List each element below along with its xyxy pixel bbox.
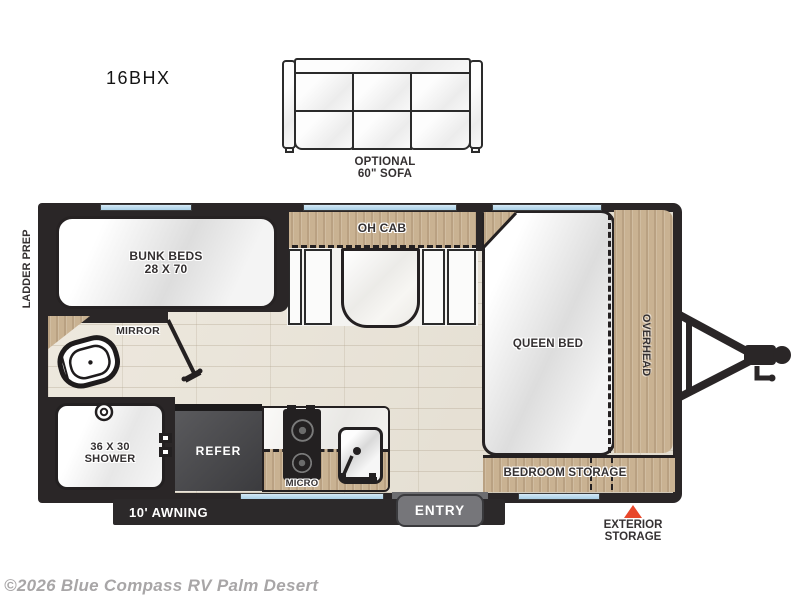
hitch [676, 313, 791, 399]
sink-faucet [339, 447, 377, 480]
wedge-edge [484, 213, 516, 247]
floorplan-page: 16BHX OPTIONAL 60" SOFA LADDER PREP OH C… [0, 0, 800, 600]
copyright: ©2026 Blue Compass RV Palm Desert [4, 576, 318, 596]
linework-overlay [0, 0, 800, 600]
shower-head-icon [96, 404, 112, 420]
bathroom-door [168, 320, 203, 382]
toilet [56, 333, 122, 390]
